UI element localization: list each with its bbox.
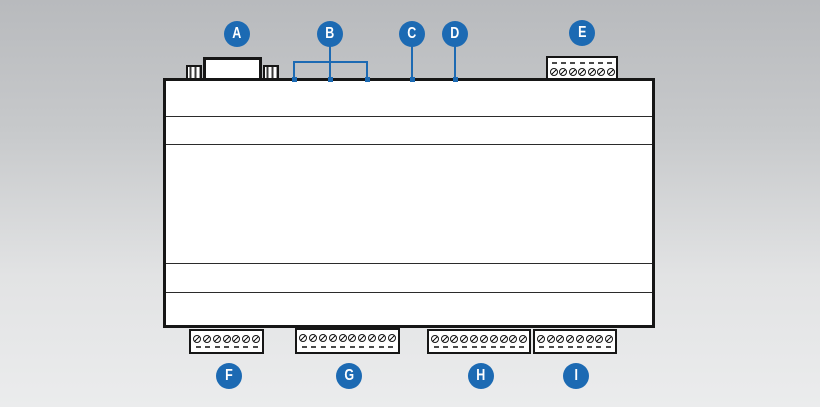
callout-d: D <box>442 21 468 47</box>
terminal-slot <box>359 346 364 348</box>
terminal-block-f <box>189 329 264 354</box>
screw-terminal <box>597 68 605 76</box>
terminal-slot <box>243 346 248 348</box>
callout-i-letter: I <box>574 368 577 384</box>
callout-b-dot-1 <box>292 77 297 82</box>
screw-terminal <box>537 335 545 343</box>
callout-e: E <box>569 20 595 46</box>
panel-line-3 <box>166 263 652 264</box>
callout-b: B <box>317 21 343 47</box>
screw-terminal <box>193 335 201 343</box>
screw-terminal <box>586 335 594 343</box>
terminal-slot <box>607 62 612 64</box>
terminal-slot <box>472 346 477 348</box>
callout-b-letter: B <box>325 26 334 42</box>
terminal-slot <box>462 346 467 348</box>
terminal-slot <box>340 346 345 348</box>
screw-terminal <box>368 334 376 342</box>
callout-e-letter: E <box>578 25 586 41</box>
terminal-slot <box>224 346 229 348</box>
terminal-slot <box>539 346 544 348</box>
panel-line-1 <box>166 116 652 117</box>
callout-c-letter: C <box>407 26 416 42</box>
terminal-slot <box>369 346 374 348</box>
callout-c: C <box>399 21 425 47</box>
terminal-slot <box>434 346 439 348</box>
screw-terminal <box>605 335 613 343</box>
terminal-slot <box>205 346 210 348</box>
screw-terminal <box>450 335 458 343</box>
callout-c-line <box>411 46 413 80</box>
screw-terminal <box>566 335 574 343</box>
terminal-slot <box>253 346 258 348</box>
screw-terminal <box>232 335 240 343</box>
terminal-slot <box>350 346 355 348</box>
screw-terminal <box>576 335 584 343</box>
screw-terminal <box>309 334 317 342</box>
terminal-slot <box>598 62 603 64</box>
screw-terminal <box>242 335 250 343</box>
terminal-slot <box>481 346 486 348</box>
screw-terminal <box>388 334 396 342</box>
terminal-slot <box>580 62 585 64</box>
terminal-slot <box>388 346 393 348</box>
screw-terminal <box>203 335 211 343</box>
screw-terminal <box>559 68 567 76</box>
screw-terminal <box>588 68 596 76</box>
screw-terminal <box>547 335 555 343</box>
terminal-block-h <box>427 329 531 354</box>
screw-terminal <box>607 68 615 76</box>
terminal-slot <box>311 346 316 348</box>
callout-g: G <box>336 363 362 389</box>
callout-f: F <box>216 363 242 389</box>
screw-terminal <box>319 334 327 342</box>
terminal-slot <box>443 346 448 348</box>
screw-terminal <box>490 335 498 343</box>
screw-terminal <box>431 335 439 343</box>
panel-line-2 <box>166 144 652 145</box>
terminal-block-g <box>295 328 400 354</box>
screw-terminal <box>252 335 260 343</box>
callout-d-letter: D <box>450 26 459 42</box>
screw-terminal <box>329 334 337 342</box>
terminal-slot <box>234 346 239 348</box>
screw-terminal <box>470 335 478 343</box>
terminal-slot <box>196 346 201 348</box>
terminal-slot <box>321 346 326 348</box>
screw-terminal <box>378 334 386 342</box>
screw-terminal <box>299 334 307 342</box>
terminal-slot <box>215 346 220 348</box>
screw-terminal <box>348 334 356 342</box>
callout-h-letter: H <box>476 368 485 384</box>
callout-d-dot <box>453 77 458 82</box>
terminal-block-i <box>533 329 617 354</box>
screw-terminal <box>509 335 517 343</box>
callout-d-line <box>454 46 456 80</box>
terminal-slot <box>491 346 496 348</box>
terminal-slot <box>453 346 458 348</box>
terminal-slot <box>589 62 594 64</box>
screw-terminal <box>441 335 449 343</box>
callout-h: H <box>468 363 494 389</box>
terminal-slot <box>570 62 575 64</box>
screw-terminal <box>223 335 231 343</box>
callout-b-dot-2 <box>328 77 333 82</box>
screw-terminal <box>519 335 527 343</box>
device-body <box>163 78 655 328</box>
callout-b-dot-3 <box>365 77 370 82</box>
callout-g-letter: G <box>344 368 354 384</box>
screw-terminal <box>550 68 558 76</box>
screw-terminal <box>595 335 603 343</box>
terminal-slot <box>302 346 307 348</box>
screw-terminal <box>339 334 347 342</box>
terminal-slot <box>552 62 557 64</box>
terminal-slot <box>510 346 515 348</box>
screw-terminal <box>578 68 586 76</box>
terminal-slot <box>519 346 524 348</box>
terminal-slot <box>561 62 566 64</box>
hardware-diagram: A B C D E COM USB1 USB2 USB3 LAN USBDEVI… <box>0 0 820 407</box>
terminal-slot <box>568 346 573 348</box>
terminal-slot <box>606 346 611 348</box>
terminal-slot <box>587 346 592 348</box>
terminal-slot <box>500 346 505 348</box>
terminal-slot <box>379 346 384 348</box>
screw-terminal <box>213 335 221 343</box>
screw-terminal <box>569 68 577 76</box>
screw-terminal <box>460 335 468 343</box>
screw-terminal <box>358 334 366 342</box>
screw-terminal <box>500 335 508 343</box>
screw-terminal <box>480 335 488 343</box>
callout-i: I <box>563 363 589 389</box>
panel-line-4 <box>166 292 652 293</box>
terminal-slot <box>596 346 601 348</box>
callout-a: A <box>224 21 250 47</box>
terminal-slot <box>558 346 563 348</box>
screw-terminal <box>556 335 564 343</box>
callout-c-dot <box>410 77 415 82</box>
terminal-slot <box>577 346 582 348</box>
callout-f-letter: F <box>225 368 233 384</box>
terminal-slot <box>549 346 554 348</box>
callout-a-letter: A <box>232 26 241 42</box>
terminal-slot <box>331 346 336 348</box>
